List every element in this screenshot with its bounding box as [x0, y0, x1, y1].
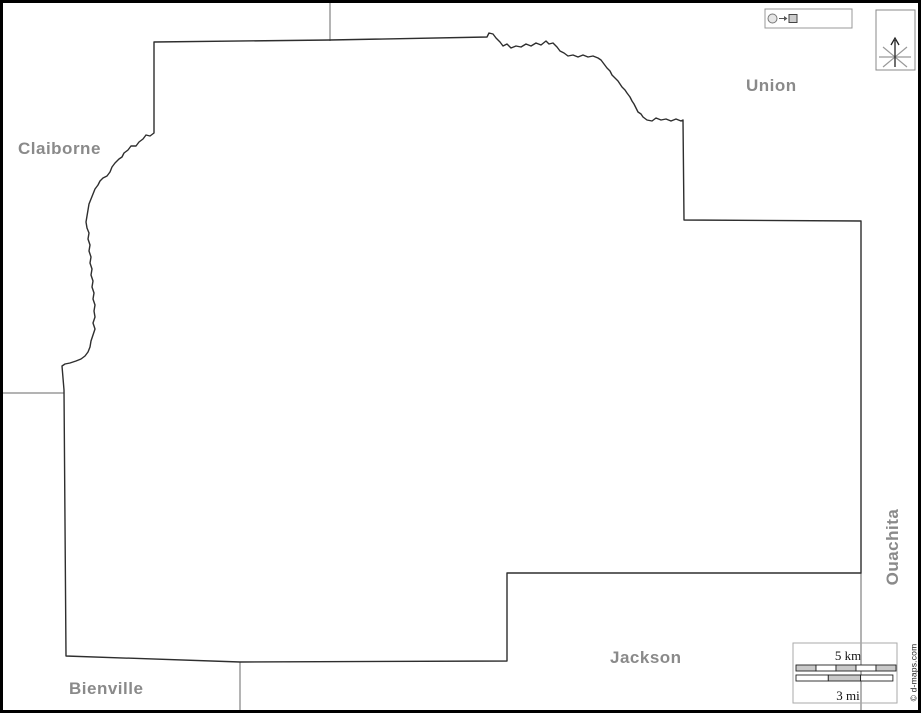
- credit-text: © d-maps.com: [909, 637, 920, 709]
- compass-diagonal-line: [883, 47, 907, 67]
- arrow-head: [784, 16, 788, 21]
- label-ouachita: Ouachita: [883, 499, 903, 595]
- compass-diagonal-line: [883, 47, 907, 67]
- parish-outline: [62, 33, 861, 662]
- square-glyph-icon: [789, 15, 797, 23]
- label-bienville: Bienville: [69, 679, 143, 699]
- map-frame: Claiborne Union Ouachita Jackson Bienvil…: [0, 0, 921, 713]
- map-canvas: [3, 3, 918, 710]
- label-jackson: Jackson: [610, 648, 682, 668]
- scale-km-label: 5 km: [796, 648, 900, 664]
- scale-bar-km: [796, 665, 896, 671]
- projection-label: Mercator: [800, 14, 843, 26]
- scale-bar-mi: [796, 675, 893, 681]
- circle-glyph-icon: [768, 14, 777, 23]
- scale-mi-label: 3 mi: [796, 688, 900, 704]
- neighbor-boundaries: [3, 3, 861, 710]
- label-union: Union: [746, 76, 797, 96]
- compass-arrowhead: [891, 38, 899, 45]
- compass-north-label: N: [888, 16, 908, 33]
- label-claiborne: Claiborne: [18, 139, 101, 159]
